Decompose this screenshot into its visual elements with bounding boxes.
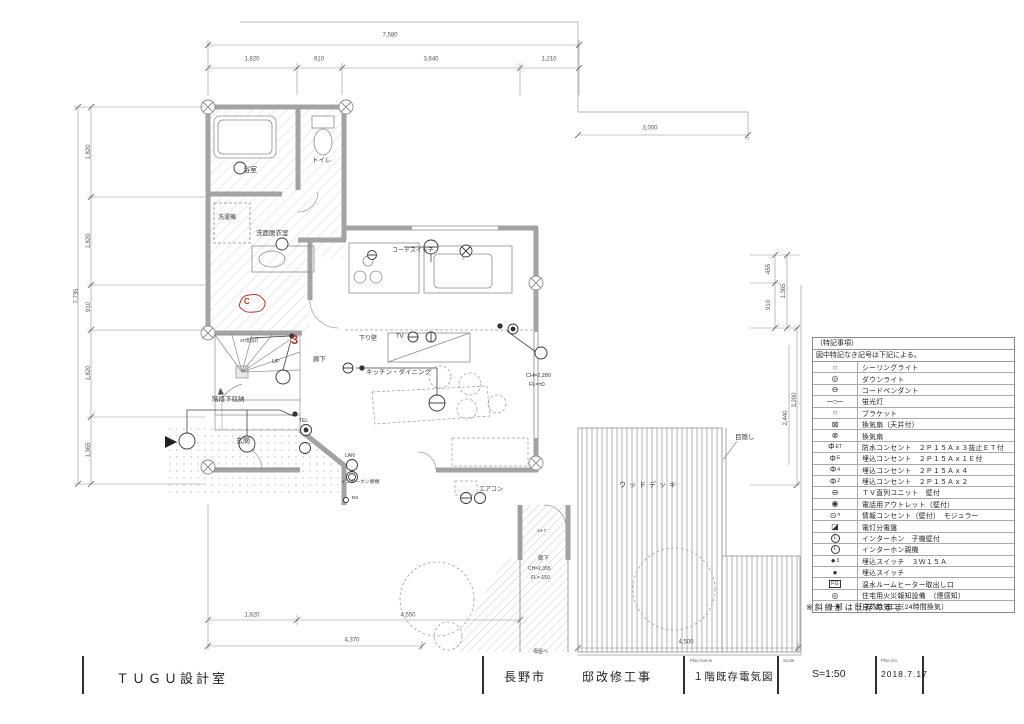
- legend-label: 情報コンセント（壁付） モジュラー: [858, 510, 979, 520]
- toilet-bowl: [314, 129, 332, 155]
- legend-label: ブラケット: [858, 408, 897, 418]
- legend-symbol-icon: ●3: [813, 556, 858, 566]
- legend-row: ◉電話用アウトレット（壁付）: [813, 499, 1014, 510]
- firm-name: ＴＵＧＵ設計室: [116, 668, 228, 687]
- titleblock-divider: [82, 656, 84, 694]
- legend-row: FG温水ルームヒーター取出し口: [813, 578, 1014, 589]
- legend-symbol-icon: ─○─: [813, 396, 858, 406]
- legend-row: ○シーリングライト: [813, 362, 1014, 373]
- titleblock-divider: [875, 656, 877, 694]
- legend-row: ─○─蛍光灯: [813, 396, 1014, 407]
- legend-label: 温水ルームヒーター取出し口: [858, 579, 954, 589]
- legend-symbol-icon: ○: [813, 408, 858, 418]
- legend-label: 埋込コンセント ２Ｐ１５Ａｘ２: [858, 476, 968, 486]
- ceiling-light-icon: [239, 436, 255, 452]
- legend-symbol-icon: ⊙n: [813, 510, 858, 520]
- legend-row: ⊖ＴＶ直列ユニット 壁付: [813, 487, 1014, 498]
- kitchen-counter: [349, 243, 419, 293]
- legend-label: 電話用アウトレット（壁付）: [858, 499, 954, 509]
- legend-symbol-icon: L: [813, 533, 858, 543]
- fan-icon: [460, 245, 472, 257]
- plan-no-label: Plan No.: [881, 658, 898, 663]
- lan-outlet-icon: [347, 460, 358, 471]
- legend-row: ⊠換気扇（天井付）: [813, 419, 1014, 430]
- outlet-icon: [475, 493, 486, 504]
- legend-box: （特記事項） 図中特記なき記号は下記による。 ○シーリングライト◎ダウンライト⊖…: [812, 337, 1015, 613]
- legend-label: 換気扇（天井付）: [858, 419, 919, 429]
- scale-label: Scale: [783, 658, 794, 663]
- bracket-light-icon: [535, 347, 547, 359]
- legend-label: 埋込スイッチ: [858, 567, 905, 577]
- legend-symbol-icon: L: [813, 544, 858, 554]
- project-city: 長野市: [504, 668, 546, 685]
- legend-row: Φ2埋込コンセント ２Ｐ１５Ａｘ２: [813, 476, 1014, 487]
- drawing-sheet: 浴室トイレ洗濯機洗面脱衣室コードスイッチ下り壁TVキッチン・ダイニング廊下UP2…: [0, 0, 1024, 724]
- legend-row: Lインターホン 子機壁付: [813, 533, 1014, 544]
- legend-row: ⊙n情報コンセント（壁付） モジュラー: [813, 510, 1014, 521]
- legend-row: ●埋込スイッチ: [813, 567, 1014, 578]
- low-table: [457, 399, 477, 419]
- legend-rows: ○シーリングライト◎ダウンライト⊖コードペンダント─○─蛍光灯○ブラケット⊠換気…: [813, 362, 1014, 612]
- plan-name-label: Plan Name: [690, 658, 712, 663]
- existing-note: ※斜線部は既存のまま: [806, 602, 905, 613]
- titleblock-divider: [482, 656, 484, 694]
- legend-row: Φ4埋込コンセント ２Ｐ１５Ａｘ４: [813, 465, 1014, 476]
- bs-outlet-icon: [344, 498, 349, 503]
- chair: [429, 366, 451, 388]
- legend-symbol-icon: FG: [813, 578, 858, 588]
- legend-row: ◎住宅用火災報知設備 （煙感知）: [813, 590, 1014, 601]
- legend-label: ＴＶ直列ユニット 壁付: [858, 487, 940, 497]
- legend-row: ●3埋込スイッチ ３Ｗ１５Ａ: [813, 556, 1014, 567]
- legend-row: ○ブラケット: [813, 408, 1014, 419]
- legend-symbol-icon: Φ4: [813, 465, 858, 475]
- legend-label: 埋込スイッチ ３Ｗ１５Ａ: [858, 556, 947, 566]
- legend-subheader: 図中特記なき記号は下記による。: [813, 350, 1014, 362]
- legend-label: 埋込コンセント ２Ｐ１５Ａｘ１Ｅ付: [858, 453, 983, 463]
- legend-symbol-icon: ΦE: [813, 453, 858, 463]
- legend-symbol-icon: Φ2: [813, 476, 858, 486]
- stove-burner: [354, 271, 366, 283]
- project-name: 邸改修工事: [582, 668, 652, 685]
- scale-value: S=1:50: [812, 668, 846, 680]
- ceiling-light-icon: [276, 238, 288, 250]
- legend-symbol-icon: ⊖: [813, 385, 858, 395]
- legend-label: 埋込コンセント ２Ｐ１５Ａｘ４: [858, 465, 968, 475]
- legend-symbol-icon: ◎: [813, 590, 858, 600]
- switch-icon: [498, 324, 502, 328]
- chair: [488, 395, 506, 413]
- sofa: [452, 438, 528, 466]
- legend-symbol-icon: ●: [813, 567, 858, 577]
- legend-row: ◪電灯分電盤: [813, 521, 1014, 532]
- hatched-existing-areas: [168, 107, 568, 652]
- legend-row: Lインターホン親機: [813, 544, 1014, 555]
- titleblock-divider: [777, 656, 779, 694]
- legend-label: インターホン親機: [858, 544, 919, 554]
- tree: [400, 562, 474, 636]
- ceiling-light-icon: [276, 370, 290, 384]
- toilet-tank: [312, 116, 334, 128]
- legend-symbol-icon: ⊖: [813, 487, 858, 497]
- legend-label: 電灯分電盤: [858, 522, 897, 532]
- legend-label: インターホン 子機壁付: [858, 533, 940, 543]
- interphone-icon: [300, 443, 311, 454]
- legend-header: （特記事項）: [813, 338, 1014, 350]
- legend-label: 住宅用火災報知設備 （煙感知）: [858, 590, 965, 600]
- legend-symbol-icon: ◉: [813, 499, 858, 509]
- legend-row: ΦE埋込コンセント ２Ｐ１５Ａｘ１Ｅ付: [813, 453, 1014, 464]
- chair: [459, 373, 481, 395]
- plan-name: １階既存電気図: [693, 669, 774, 684]
- ceiling-light-icon: [179, 433, 195, 449]
- legend-row: ⊗換気扇: [813, 430, 1014, 441]
- legend-symbol-icon: ◎: [813, 373, 858, 383]
- switch-icon: [290, 334, 294, 338]
- bathtub: [214, 116, 276, 158]
- switch-icon: [293, 412, 297, 416]
- stove-burner: [370, 271, 382, 283]
- wood-deck: [578, 428, 800, 652]
- legend-label: シーリングライト: [858, 362, 919, 372]
- legend-label: 蛍光灯: [858, 396, 883, 406]
- legend-label: コードペンダント: [858, 385, 919, 395]
- legend-label: ダウンライト: [858, 374, 905, 384]
- ceiling-light-icon: [234, 162, 246, 174]
- legend-label: 防水コンセント ２Ｐ１５Ａｘ３抜止ＥＴ付: [858, 442, 1004, 452]
- legend-symbol-icon: ○: [813, 362, 858, 372]
- titleblock-divider: [683, 656, 685, 694]
- legend-symbol-icon: ⊗: [813, 430, 858, 440]
- legend-row: ΦET防水コンセント ２Ｐ１５Ａｘ３抜止ＥＴ付: [813, 442, 1014, 453]
- legend-row: ⊖コードペンダント: [813, 385, 1014, 396]
- legend-label: 換気扇: [858, 431, 883, 441]
- legend-row: ◎ダウンライト: [813, 373, 1014, 384]
- switch-icon: [360, 366, 364, 370]
- plan-date: 2018.7.17: [881, 669, 928, 679]
- legend-symbol-icon: ⊠: [813, 419, 858, 429]
- legend-symbol-icon: ΦET: [813, 442, 858, 452]
- legend-symbol-icon: ◪: [813, 521, 858, 531]
